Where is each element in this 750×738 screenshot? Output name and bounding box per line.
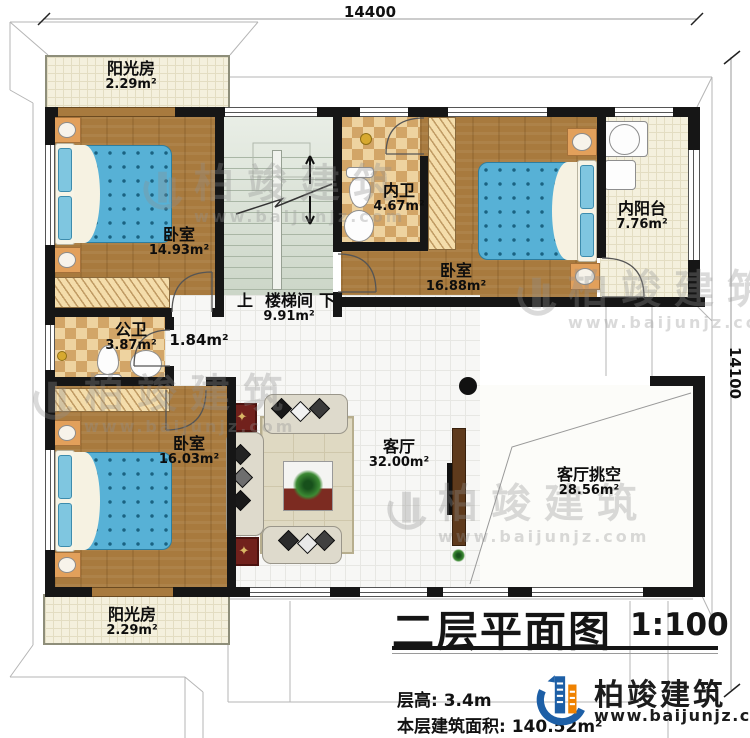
wall bbox=[508, 587, 532, 597]
wall bbox=[165, 317, 174, 330]
wall bbox=[333, 107, 342, 252]
window bbox=[532, 587, 643, 597]
wall bbox=[427, 587, 443, 597]
wall bbox=[227, 386, 236, 596]
wardrobe bbox=[428, 117, 456, 250]
window bbox=[360, 107, 408, 117]
shower-fixture-icon bbox=[360, 133, 372, 145]
wall bbox=[45, 107, 55, 145]
room-label-sunroom-bottom: 阳光房2.29m² bbox=[106, 606, 157, 639]
sunroom-opening bbox=[58, 107, 175, 117]
sink bbox=[344, 210, 374, 242]
title-rule-thin bbox=[392, 653, 718, 654]
plant bbox=[452, 549, 465, 562]
nightstand bbox=[567, 128, 597, 156]
wall bbox=[173, 587, 250, 597]
tv bbox=[447, 463, 452, 515]
window bbox=[443, 587, 508, 597]
room-label-living-void: 客厅挑空28.56m² bbox=[557, 466, 621, 499]
nightstand bbox=[53, 247, 81, 273]
water-heater bbox=[604, 160, 636, 190]
room-label-living: 客厅32.00m² bbox=[369, 438, 429, 471]
bed bbox=[478, 160, 597, 262]
room-label-bedroom-bl: 卧室16.03m² bbox=[159, 435, 219, 468]
window bbox=[615, 107, 673, 117]
stair-area-label: 9.91m² bbox=[263, 310, 314, 325]
nightstand bbox=[53, 117, 81, 143]
sunroom-opening bbox=[92, 587, 173, 597]
dimension-right: 14100 bbox=[726, 347, 744, 399]
wall bbox=[330, 587, 360, 597]
brand-url: www.baijunjz.com bbox=[594, 706, 750, 725]
window bbox=[360, 587, 427, 597]
floorplan-canvas: ✦ ✦ bbox=[0, 0, 750, 738]
room-label-sunroom-top: 阳光房2.29m² bbox=[105, 60, 156, 93]
room-label-bedroom-tl: 卧室14.93m² bbox=[149, 226, 209, 259]
wall bbox=[45, 308, 172, 317]
stair-rail bbox=[272, 150, 282, 290]
structural-column bbox=[459, 377, 477, 395]
wall bbox=[212, 308, 224, 317]
plan-scale: 1:100 bbox=[630, 607, 729, 643]
wardrobe bbox=[54, 388, 170, 412]
floor-height-text: 层高: 3.4m bbox=[397, 686, 492, 711]
window bbox=[250, 587, 330, 597]
hallway-area-label: 1.84m² bbox=[169, 332, 228, 349]
dimension-top: 14400 bbox=[344, 3, 396, 21]
room-label-balcony: 内阳台7.76m² bbox=[616, 200, 667, 233]
window bbox=[688, 150, 700, 260]
wall bbox=[342, 297, 705, 307]
room-label-bath-public: 公卫3.87m² bbox=[105, 321, 156, 354]
light-fixture-icon bbox=[57, 351, 67, 361]
wall bbox=[597, 107, 606, 258]
wardrobe bbox=[54, 277, 170, 308]
wall bbox=[693, 376, 705, 587]
window bbox=[45, 145, 55, 245]
window bbox=[45, 450, 55, 550]
room-label-bath-inner: 内卫4.67m² bbox=[373, 182, 424, 215]
window bbox=[448, 107, 547, 117]
room-label-bedroom-tr: 卧室16.88m² bbox=[426, 262, 486, 295]
room-label-stairwell: 楼梯间 bbox=[265, 292, 313, 310]
wall bbox=[688, 107, 700, 150]
wall bbox=[45, 377, 166, 386]
wall bbox=[333, 242, 428, 251]
nightstand bbox=[53, 552, 81, 578]
title-rule bbox=[392, 646, 718, 650]
wall bbox=[45, 587, 92, 597]
wall bbox=[215, 107, 224, 317]
tv-cabinet bbox=[452, 428, 466, 546]
stair-up-label: 上 bbox=[237, 292, 253, 310]
plant bbox=[293, 470, 323, 500]
stair-down-label: 下 bbox=[319, 292, 335, 310]
nightstand bbox=[53, 420, 81, 446]
brand-logo-icon bbox=[534, 668, 588, 732]
toilet bbox=[346, 167, 374, 209]
balcony-sink bbox=[602, 121, 648, 157]
window bbox=[225, 107, 317, 117]
wall bbox=[206, 377, 236, 386]
wall bbox=[165, 366, 174, 386]
wall bbox=[643, 587, 705, 597]
bed bbox=[55, 450, 172, 552]
nightstand bbox=[570, 263, 600, 290]
wall bbox=[408, 107, 448, 117]
window bbox=[45, 325, 55, 370]
